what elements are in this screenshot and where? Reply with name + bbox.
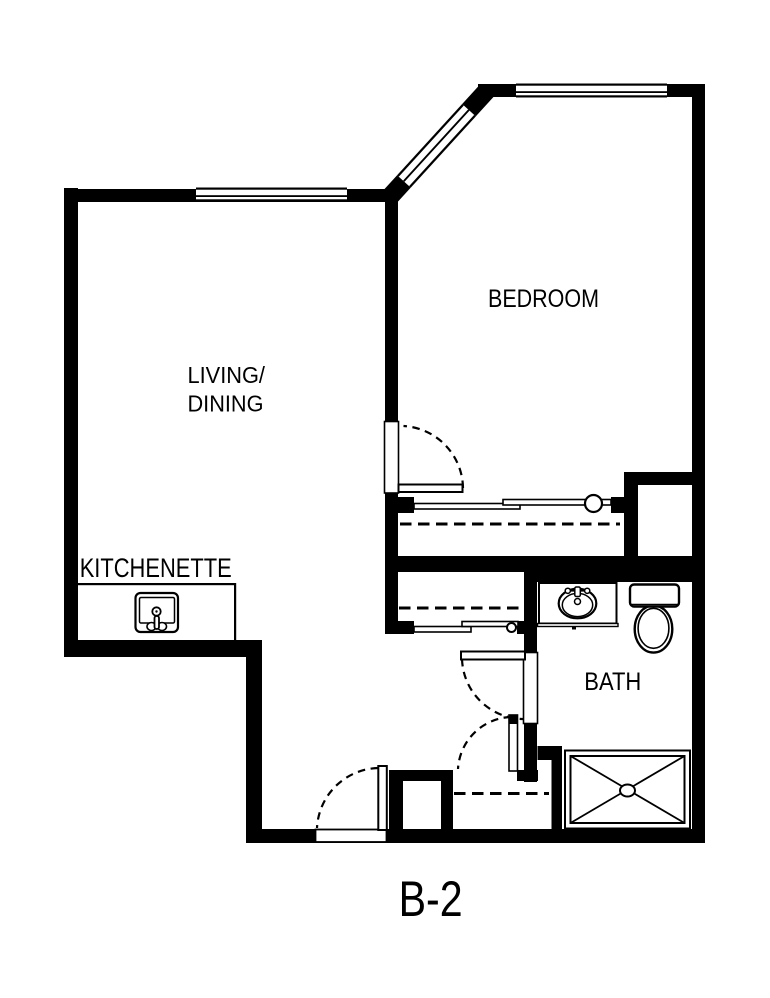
svg-text:BATH: BATH — [584, 668, 641, 696]
svg-text:LIVING/: LIVING/ — [188, 362, 266, 388]
svg-text:B-2: B-2 — [399, 870, 463, 927]
svg-text:BEDROOM: BEDROOM — [488, 285, 599, 313]
svg-text:KITCHENETTE: KITCHENETTE — [80, 553, 232, 583]
svg-text:DINING: DINING — [188, 391, 264, 417]
